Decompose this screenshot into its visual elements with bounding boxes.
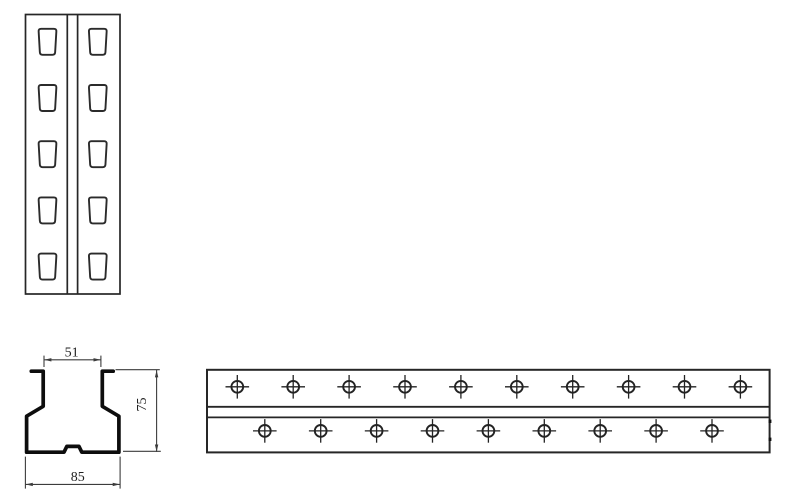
svg-text:75: 75 (135, 398, 150, 412)
svg-text:85: 85 (71, 470, 85, 485)
svg-text:51: 51 (65, 346, 79, 361)
